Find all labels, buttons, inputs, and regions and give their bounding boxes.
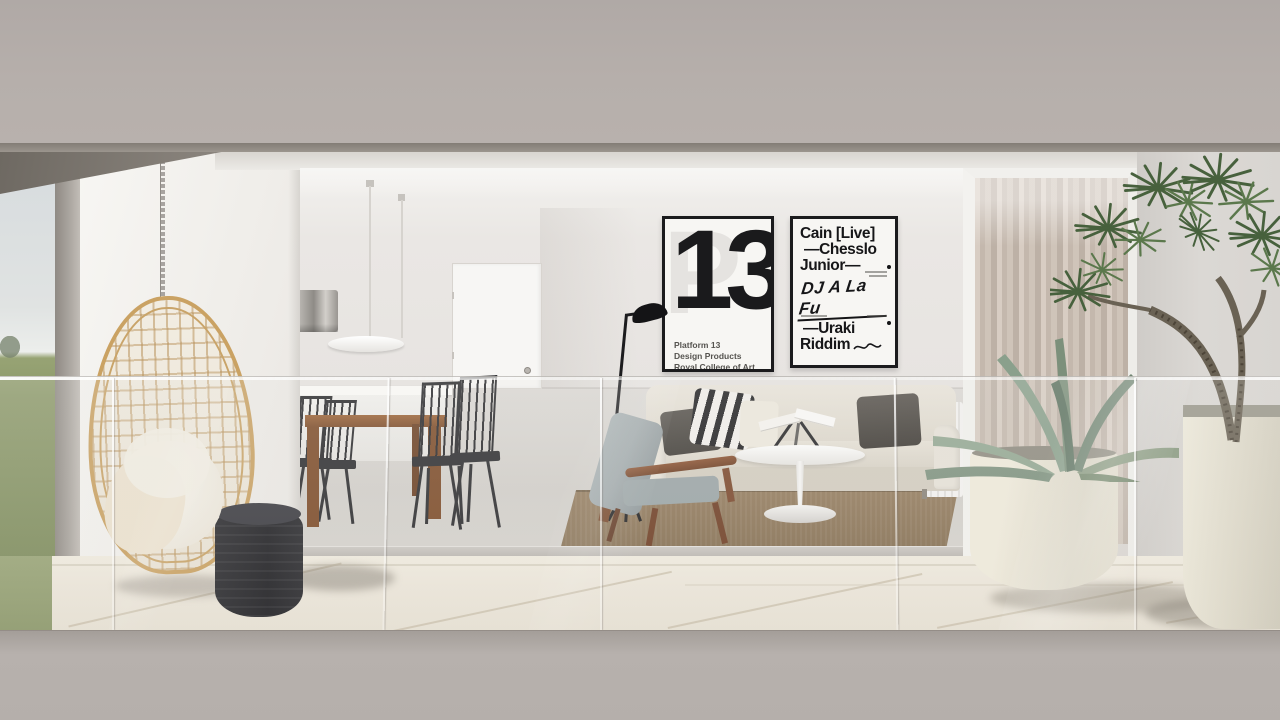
dining-chair (450, 376, 500, 548)
glass-seam (600, 378, 602, 630)
lineup-artist: Riddim (800, 337, 889, 353)
tile-joint (668, 573, 923, 629)
pouf (215, 505, 303, 617)
glass-seam (112, 378, 114, 630)
poster-platform13: P 13 Platform 13 Design Products Royal C… (662, 216, 774, 372)
lamp-shade (629, 300, 668, 325)
interior-door (452, 263, 542, 389)
open-book-page (758, 412, 799, 431)
pendant-lamp (328, 336, 404, 352)
coffee-table-base (764, 505, 836, 523)
signature-scribble (852, 340, 882, 354)
poster-dot (887, 265, 891, 269)
poster-fine-print (801, 315, 827, 317)
grass-strip (0, 556, 52, 632)
pendant-cord (401, 200, 403, 338)
wall-cylinder-light (300, 290, 338, 332)
hanging-chair-chain (160, 150, 165, 302)
poster-caption: Platform 13 Design Products Royal Colleg… (674, 340, 755, 372)
poster-caption-line: Platform 13 (674, 340, 755, 351)
sofa-leg (922, 489, 927, 499)
facade-top-band (0, 0, 1280, 143)
architectural-render: P 13 Platform 13 Design Products Royal C… (0, 0, 1280, 720)
door-hinge (452, 352, 454, 359)
window-jamb (55, 150, 80, 562)
armchair-leg (712, 502, 728, 544)
horizon-tree (0, 336, 22, 360)
poster-fine-print (869, 275, 887, 277)
glass-top-edge (0, 376, 1280, 380)
poster-lineup: Cain [Live] —Chesslo Junior— DJ A La Fu … (790, 216, 898, 368)
lineup-artist: —Uraki (803, 321, 889, 337)
door-knob (524, 367, 531, 374)
glass-seam (1134, 378, 1136, 630)
pendant-cord (369, 186, 371, 338)
lineup-artist-text: Riddim (800, 337, 850, 353)
lineup-artist: Cain [Live] (800, 226, 889, 242)
coffee-table-stem (792, 461, 808, 511)
door-hinge (452, 292, 454, 299)
armchair-frame (722, 468, 735, 503)
pillow-dark (856, 393, 921, 449)
poster-fine-print (865, 271, 887, 273)
poster-caption-line: Design Products (674, 351, 755, 362)
lineup-artist: —Chesslo (804, 242, 889, 258)
poster-fine-print (867, 315, 887, 317)
facade-soffit (0, 143, 1280, 152)
coffee-table (735, 405, 865, 529)
table-leg (307, 427, 319, 527)
poster-caption-line: Royal College of Art (674, 362, 755, 372)
facade-bottom-band (0, 630, 1280, 720)
poster-dot (887, 321, 891, 325)
poster-number: 13 (671, 216, 774, 334)
